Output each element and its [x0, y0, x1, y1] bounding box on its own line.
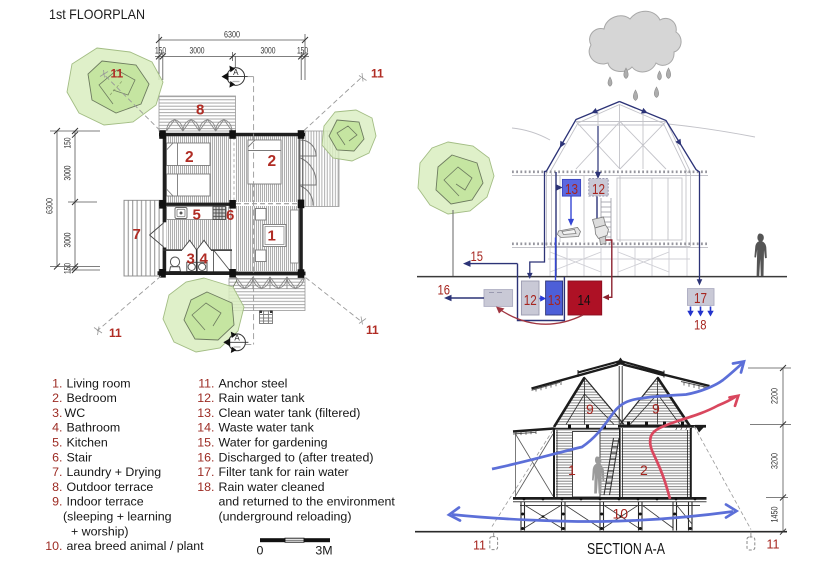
- svg-text:17: 17: [694, 290, 707, 307]
- svg-text:12: 12: [592, 181, 605, 198]
- svg-text:15.: 15.: [197, 436, 214, 450]
- svg-text:3200: 3200: [770, 453, 780, 469]
- svg-text:1: 1: [268, 228, 276, 245]
- svg-text:17.: 17.: [197, 465, 214, 479]
- svg-text:Rain water tank: Rain water tank: [219, 391, 306, 405]
- svg-text:Laundry + Drying: Laundry + Drying: [67, 465, 162, 479]
- svg-text:9.: 9.: [52, 495, 62, 509]
- svg-text:2.: 2.: [52, 391, 62, 405]
- svg-text:+ worship): + worship): [71, 524, 129, 538]
- svg-text:7.: 7.: [52, 465, 62, 479]
- svg-text:3000: 3000: [63, 232, 73, 247]
- svg-text:2: 2: [640, 462, 648, 478]
- svg-text:4: 4: [200, 251, 209, 268]
- svg-text:Bathroom: Bathroom: [67, 421, 121, 435]
- svg-text:6300: 6300: [45, 198, 55, 214]
- svg-text:5: 5: [193, 207, 201, 224]
- svg-text:and returned to the environmen: and returned to the environment: [219, 495, 396, 509]
- svg-text:13: 13: [565, 181, 578, 198]
- svg-text:11.: 11.: [198, 376, 214, 390]
- svg-text:0: 0: [257, 544, 264, 558]
- svg-text:7: 7: [133, 226, 141, 243]
- svg-text:8.: 8.: [52, 480, 62, 494]
- svg-text:WC: WC: [65, 406, 86, 420]
- svg-text:16: 16: [438, 283, 451, 298]
- svg-text:Filter tank for rain water: Filter tank for rain water: [219, 465, 349, 479]
- svg-text:Living room: Living room: [67, 376, 131, 390]
- svg-text:Kitchen: Kitchen: [67, 436, 108, 450]
- svg-text:18: 18: [694, 318, 707, 333]
- svg-text:Discharged to (after treated): Discharged to (after treated): [219, 450, 374, 464]
- svg-text:2200: 2200: [770, 388, 780, 404]
- svg-text:Bedroom: Bedroom: [67, 391, 117, 405]
- svg-text:18.: 18.: [197, 480, 214, 494]
- svg-text:2: 2: [185, 149, 194, 166]
- svg-text:15: 15: [471, 249, 484, 264]
- svg-text:3: 3: [187, 251, 195, 268]
- svg-text:Anchor steel: Anchor steel: [219, 376, 288, 390]
- svg-text:1st FLOORPLAN: 1st FLOORPLAN: [49, 6, 145, 22]
- svg-text:9: 9: [652, 401, 660, 417]
- svg-text:1: 1: [568, 462, 576, 478]
- svg-text:14: 14: [578, 292, 591, 309]
- svg-text:11: 11: [111, 67, 124, 81]
- svg-text:Waste water tank: Waste water tank: [219, 421, 315, 435]
- svg-text:12.: 12.: [197, 391, 214, 405]
- svg-text:6300: 6300: [224, 30, 240, 40]
- svg-text:11: 11: [371, 67, 384, 81]
- svg-text:3.: 3.: [52, 406, 62, 420]
- svg-text:Clean water tank (filtered): Clean water tank (filtered): [219, 406, 361, 420]
- svg-text:8: 8: [196, 102, 204, 119]
- svg-text:Stair: Stair: [67, 450, 92, 464]
- svg-text:150: 150: [155, 46, 166, 56]
- svg-text:13.: 13.: [197, 406, 214, 420]
- svg-text:(underground reloading): (underground reloading): [219, 510, 352, 524]
- svg-text:10: 10: [613, 506, 629, 522]
- svg-text:3000: 3000: [63, 165, 73, 180]
- svg-text:11: 11: [473, 539, 486, 553]
- svg-text:6: 6: [226, 207, 234, 224]
- svg-text:(sleeping + learning: (sleeping + learning: [63, 510, 172, 524]
- svg-text:Indoor terrace: Indoor terrace: [67, 495, 144, 509]
- svg-text:Rain water cleaned: Rain water cleaned: [219, 480, 325, 494]
- svg-text:2: 2: [268, 153, 277, 170]
- svg-text:11: 11: [366, 323, 379, 337]
- svg-text:14.: 14.: [197, 421, 214, 435]
- svg-text:3000: 3000: [261, 46, 276, 56]
- svg-text:Outdoor terrace: Outdoor terrace: [67, 480, 154, 494]
- svg-text:13: 13: [548, 292, 561, 309]
- svg-text:10.: 10.: [45, 539, 62, 553]
- svg-text:150: 150: [297, 46, 308, 56]
- svg-text:4.: 4.: [52, 421, 62, 435]
- svg-text:9: 9: [586, 401, 594, 417]
- svg-text:3M: 3M: [315, 544, 332, 558]
- svg-text:5.: 5.: [52, 436, 62, 450]
- svg-text:Water for gardening: Water for gardening: [219, 436, 328, 450]
- svg-text:16.: 16.: [197, 450, 214, 464]
- svg-text:150: 150: [63, 137, 73, 148]
- svg-text:150: 150: [63, 263, 73, 274]
- svg-text:1450: 1450: [770, 506, 780, 522]
- svg-text:3000: 3000: [190, 46, 205, 56]
- svg-text:11: 11: [109, 326, 122, 340]
- svg-text:12: 12: [524, 292, 537, 309]
- svg-text:area breed animal / plant: area breed animal / plant: [67, 539, 205, 553]
- svg-text:11: 11: [767, 538, 780, 552]
- svg-text:1.: 1.: [52, 376, 62, 390]
- svg-text:6.: 6.: [52, 450, 62, 464]
- svg-text:SECTION A-A: SECTION A-A: [587, 541, 666, 558]
